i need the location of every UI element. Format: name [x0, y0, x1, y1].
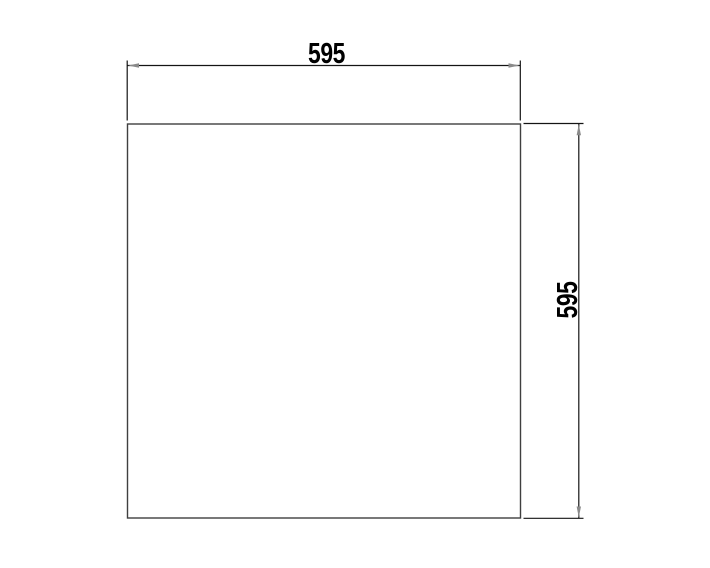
width-dim-arrow-right	[509, 63, 520, 67]
technical-drawing: 595 595	[0, 0, 710, 568]
drawing-canvas: 595 595	[0, 0, 710, 568]
height-dim-arrow-bottom	[577, 507, 581, 518]
height-dim-arrow-top	[577, 124, 581, 135]
width-dim-arrow-left	[128, 63, 139, 67]
panel-outline	[128, 124, 521, 518]
height-dimension-label: 595	[552, 281, 584, 318]
width-dimension-label: 595	[308, 38, 345, 70]
